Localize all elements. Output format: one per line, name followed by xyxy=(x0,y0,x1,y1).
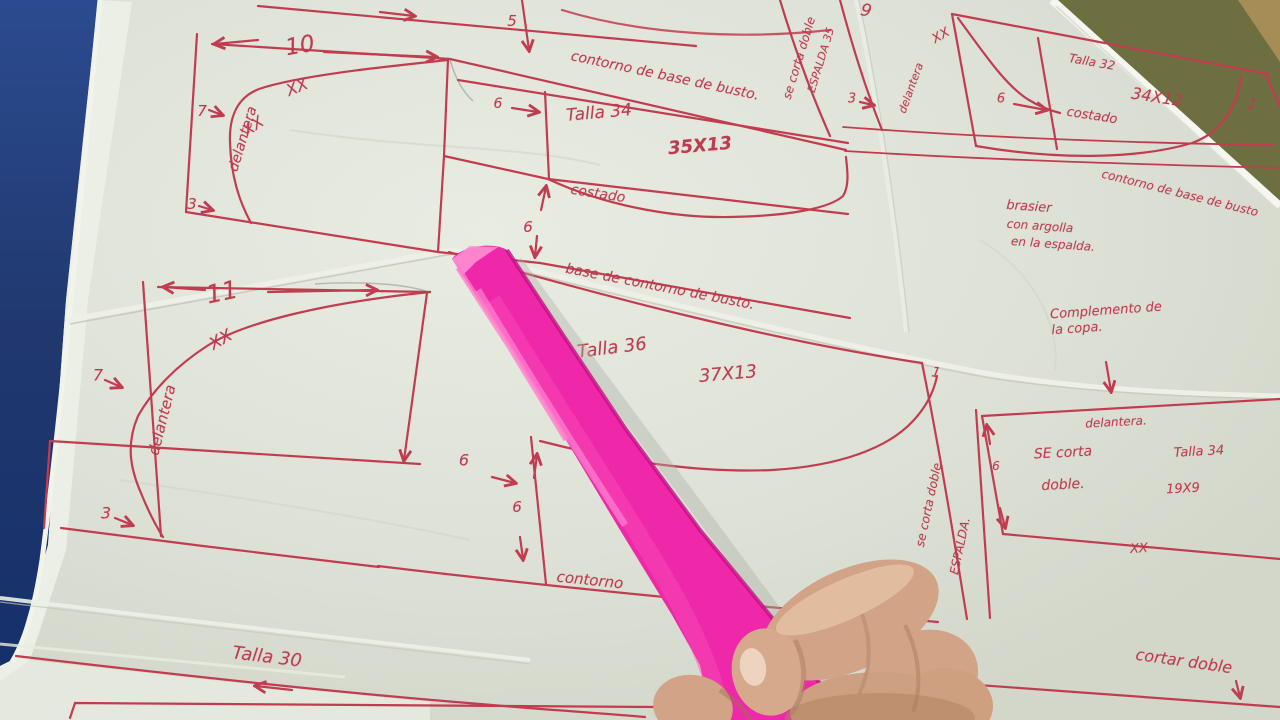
foreground-objects xyxy=(0,0,1280,720)
photo-of-sewing-patterns: 10XXXXdelantera735contorno de base de bu… xyxy=(0,0,1280,720)
